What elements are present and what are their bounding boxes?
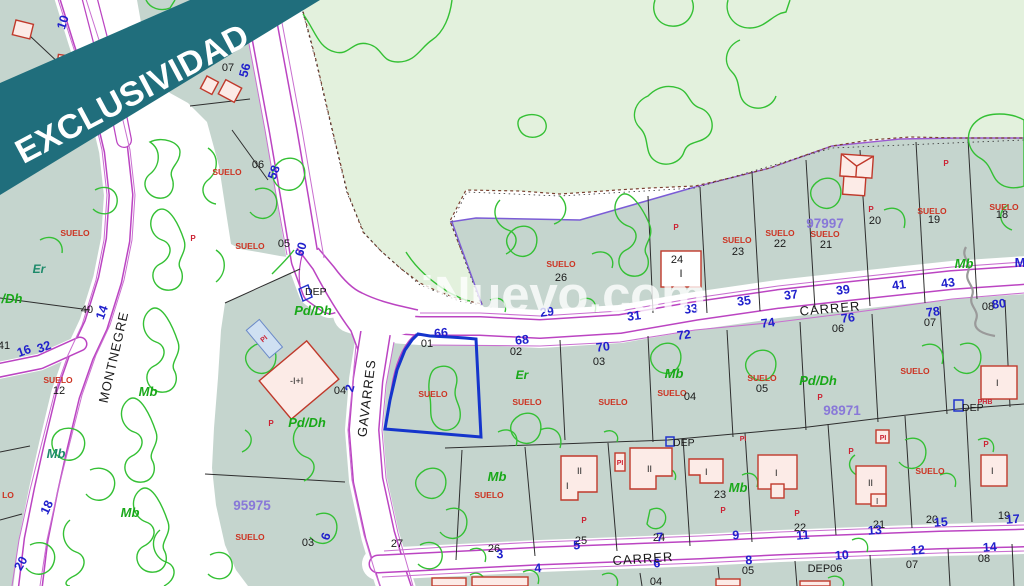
svg-text:Mb: Mb (665, 366, 684, 381)
svg-text:12: 12 (53, 385, 65, 397)
svg-text:07: 07 (906, 559, 918, 571)
svg-text:37: 37 (783, 287, 799, 303)
svg-text:68: 68 (514, 332, 529, 347)
svg-text:3: 3 (496, 547, 504, 561)
svg-text:P: P (190, 234, 196, 243)
svg-text:I: I (775, 468, 778, 478)
svg-text:24: 24 (671, 254, 683, 266)
svg-text:03: 03 (302, 537, 314, 549)
svg-text:5: 5 (573, 538, 581, 552)
svg-text:35: 35 (736, 293, 752, 309)
svg-text:27: 27 (391, 538, 403, 550)
svg-text:M: M (1015, 255, 1024, 270)
svg-text:70: 70 (595, 339, 611, 355)
svg-text:04: 04 (650, 576, 662, 586)
svg-text:Pd/Dh: Pd/Dh (288, 415, 326, 430)
svg-text:17: 17 (1005, 512, 1020, 527)
svg-text:Pd/Dh: Pd/Dh (294, 303, 332, 318)
svg-text:iNuevo.com: iNuevo.com (420, 266, 706, 323)
svg-text:98971: 98971 (823, 403, 861, 418)
svg-text:SUELO: SUELO (900, 366, 930, 376)
svg-text:Mb: Mb (47, 446, 66, 461)
svg-text:P: P (817, 393, 823, 402)
svg-text:/Dh: /Dh (1, 291, 23, 306)
svg-text:SUELO: SUELO (235, 532, 265, 542)
svg-text:DEP: DEP (673, 437, 695, 449)
svg-text:14: 14 (982, 540, 997, 555)
svg-text:7: 7 (656, 530, 664, 544)
svg-text:SUELO: SUELO (598, 397, 628, 407)
svg-text:03: 03 (593, 356, 605, 368)
svg-text:P: P (983, 440, 989, 449)
svg-text:01: 01 (421, 338, 433, 350)
svg-text:DEP: DEP (305, 286, 327, 298)
svg-text:08: 08 (978, 553, 990, 565)
svg-text:95975: 95975 (233, 498, 271, 513)
svg-text:04: 04 (684, 391, 696, 403)
svg-text:SUELO: SUELO (722, 235, 752, 245)
svg-text:I: I (996, 378, 999, 388)
svg-text:I: I (705, 467, 708, 477)
svg-text:PI: PI (880, 435, 887, 442)
svg-text:05: 05 (756, 383, 768, 395)
svg-text:Pd/Dh: Pd/Dh (799, 373, 837, 388)
svg-text:Mb: Mb (729, 480, 748, 495)
svg-text:P: P (943, 159, 949, 168)
svg-text:II: II (647, 464, 652, 474)
svg-text:66: 66 (433, 325, 448, 340)
svg-text:41: 41 (0, 340, 10, 352)
svg-text:78: 78 (925, 304, 941, 320)
svg-text:Er: Er (516, 368, 530, 382)
svg-text:9: 9 (732, 528, 740, 542)
svg-text:SUELO: SUELO (43, 375, 73, 385)
svg-text:P: P (581, 516, 587, 525)
svg-text:80: 80 (991, 296, 1007, 312)
svg-text:Mb: Mb (955, 256, 974, 271)
svg-text:41: 41 (891, 277, 907, 293)
svg-text:20: 20 (869, 215, 881, 227)
svg-text:39: 39 (835, 282, 851, 298)
svg-text:P: P (794, 509, 800, 518)
svg-text:02: 02 (510, 346, 522, 358)
svg-text:18: 18 (996, 209, 1008, 221)
svg-text:12: 12 (910, 543, 925, 558)
svg-text:06: 06 (252, 159, 264, 171)
svg-text:II: II (577, 466, 582, 476)
svg-text:SUELO: SUELO (765, 228, 795, 238)
svg-text:P: P (848, 447, 854, 456)
svg-text:43: 43 (940, 275, 956, 291)
svg-text:P: P (673, 223, 679, 232)
svg-text:21: 21 (820, 239, 832, 251)
svg-text:13: 13 (867, 523, 882, 538)
svg-text:Mb: Mb (139, 384, 158, 399)
svg-text:74: 74 (760, 315, 776, 331)
svg-text:PHB: PHB (978, 399, 993, 406)
svg-text:SUELO: SUELO (657, 388, 687, 398)
svg-text:P: P (268, 419, 274, 428)
svg-text:72: 72 (676, 327, 692, 343)
svg-text:40: 40 (81, 304, 93, 316)
svg-text:SUELO: SUELO (212, 167, 242, 177)
svg-text:P: P (720, 506, 726, 515)
svg-text:Mb: Mb (121, 505, 140, 520)
svg-text:15: 15 (933, 515, 948, 530)
svg-text:PI: PI (617, 460, 624, 467)
svg-text:Er: Er (33, 262, 47, 276)
svg-text:19: 19 (928, 214, 940, 226)
svg-text:SUELO: SUELO (60, 228, 90, 238)
svg-text:II: II (868, 478, 873, 488)
svg-text:23: 23 (714, 489, 726, 501)
svg-text:SUELO: SUELO (235, 241, 265, 251)
svg-text:10: 10 (834, 548, 849, 563)
svg-text:LO: LO (2, 490, 14, 500)
svg-text:DEP06: DEP06 (808, 563, 843, 575)
svg-text:-I+I: -I+I (290, 376, 303, 386)
svg-text:Mb: Mb (488, 469, 507, 484)
svg-text:I: I (876, 497, 878, 506)
svg-text:SUELO: SUELO (747, 373, 777, 383)
svg-text:PI: PI (740, 436, 747, 443)
svg-text:I: I (991, 466, 994, 476)
svg-text:05: 05 (278, 238, 290, 250)
svg-text:97997: 97997 (806, 216, 844, 231)
svg-text:23: 23 (732, 246, 744, 258)
svg-text:P: P (868, 205, 874, 214)
svg-text:22: 22 (774, 238, 786, 250)
svg-text:SUELO: SUELO (418, 389, 448, 399)
svg-text:11: 11 (796, 528, 810, 543)
svg-text:4: 4 (534, 561, 542, 575)
svg-text:SUELO: SUELO (915, 466, 945, 476)
svg-text:I: I (566, 481, 569, 491)
svg-text:8: 8 (745, 553, 753, 567)
svg-text:SUELO: SUELO (512, 397, 542, 407)
svg-text:SUELO: SUELO (474, 490, 504, 500)
